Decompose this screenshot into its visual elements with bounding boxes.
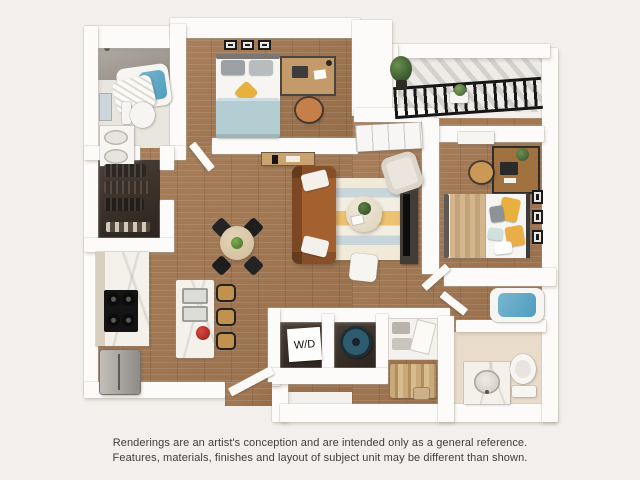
bed2-folded-towel xyxy=(493,241,512,255)
desk-chair2 xyxy=(470,162,493,183)
wall-art-frame xyxy=(241,40,254,50)
wall-bathroom1-bedroom1 xyxy=(170,24,186,150)
hanging-clothes-row2 xyxy=(104,181,150,194)
hanging-clothes-row3 xyxy=(104,198,144,211)
closet2-storage-box xyxy=(414,388,429,399)
closet2-hanging-clothes xyxy=(390,364,436,398)
floorplan-rendering: W/D xyxy=(0,0,640,480)
wall-living-bedroom2 xyxy=(422,118,439,274)
wall-closet-south xyxy=(84,238,174,252)
toilet2-tank xyxy=(512,386,536,397)
sink2-faucet xyxy=(485,390,489,394)
wall-art-frame xyxy=(258,40,271,50)
bed2-headboard xyxy=(526,194,530,258)
bed2-pillow-gray xyxy=(489,205,505,223)
wall-laundry-divider xyxy=(322,314,334,374)
exterior-wall-top-left xyxy=(86,26,178,48)
mirror1 xyxy=(100,94,111,120)
wall-block-foyer xyxy=(352,20,392,116)
bed1-blanket xyxy=(216,98,280,138)
refrigerator-handle xyxy=(118,354,120,390)
balcony-plant-large xyxy=(390,56,412,82)
toilet2-seat xyxy=(515,360,531,378)
bed1-headboard xyxy=(216,54,280,59)
toilet1-bowl xyxy=(130,102,155,128)
exterior-wall-bottom-right xyxy=(280,404,556,422)
coffee-table-plant xyxy=(358,202,371,215)
wall-closet-east-a xyxy=(160,146,174,170)
shoe-shelf xyxy=(106,222,150,232)
closet2-linen-pile xyxy=(392,322,410,334)
bar-stool xyxy=(218,286,234,300)
island-sink-basin xyxy=(182,306,208,322)
bed2-blanket-tan xyxy=(450,194,486,258)
computer-icon xyxy=(500,162,518,175)
wall-art-frame xyxy=(224,40,237,50)
disclaimer-line-1: Renderings are an artist's conception an… xyxy=(0,436,640,451)
exterior-wall-right xyxy=(542,48,558,422)
disclaimer-caption: Renderings are an artist's conception an… xyxy=(0,436,640,466)
dining-centerpiece-plant xyxy=(231,237,243,249)
wall-laundry-east xyxy=(376,314,388,374)
den-cabinets xyxy=(355,122,422,151)
exterior-wall-top-bedroom1 xyxy=(170,18,360,38)
wall-bedroom2-south xyxy=(444,268,556,286)
sink1-right xyxy=(104,149,128,164)
balcony-plant-pot xyxy=(396,80,407,90)
sink1-left xyxy=(104,130,128,145)
cooktop xyxy=(104,290,138,332)
washer-dryer-label-text: W/D xyxy=(293,338,315,351)
page: { "disclaimer": { "line1": "Renderings a… xyxy=(0,0,640,480)
console-books xyxy=(286,156,300,162)
wall-laundry-south xyxy=(268,368,388,384)
laptop-icon xyxy=(292,66,308,78)
desk2-plant xyxy=(516,148,529,161)
bar-stool xyxy=(218,334,234,348)
bar-stool xyxy=(218,310,234,324)
balcony-plant-small xyxy=(454,84,466,96)
ottoman xyxy=(349,253,379,283)
desk2-keyboard xyxy=(504,178,516,183)
wall-art-frame xyxy=(532,190,543,204)
tv xyxy=(403,194,410,256)
bathtub2-water xyxy=(498,293,536,317)
wall-art-frame xyxy=(532,230,543,244)
bed2-footboard xyxy=(444,194,449,258)
console-vase xyxy=(272,155,278,164)
balcony-wall-top xyxy=(390,44,550,58)
wall-art-frame xyxy=(532,210,543,224)
desk1-papers xyxy=(313,69,326,80)
dresser2 xyxy=(458,132,494,144)
desk1-lamp xyxy=(326,60,332,66)
wall-closet2-bathroom2 xyxy=(438,316,454,422)
closet2-linen-pile xyxy=(392,338,412,350)
bed2-pillow-blue xyxy=(487,227,503,241)
fruit-bowl xyxy=(196,326,210,340)
bed1-pillow-gray xyxy=(221,60,245,75)
refrigerator xyxy=(100,350,140,394)
disclaimer-line-2: Features, materials, finishes and layout… xyxy=(0,451,640,466)
wall-bedroom1-south xyxy=(212,138,358,154)
washer-dryer-label: W/D xyxy=(287,327,322,362)
bed1-pillow-gray xyxy=(249,60,273,75)
hanging-clothes-row1 xyxy=(104,164,146,177)
washer-drum-center xyxy=(352,338,360,346)
island-sink-basin xyxy=(182,288,208,304)
office-chair1 xyxy=(296,98,322,122)
